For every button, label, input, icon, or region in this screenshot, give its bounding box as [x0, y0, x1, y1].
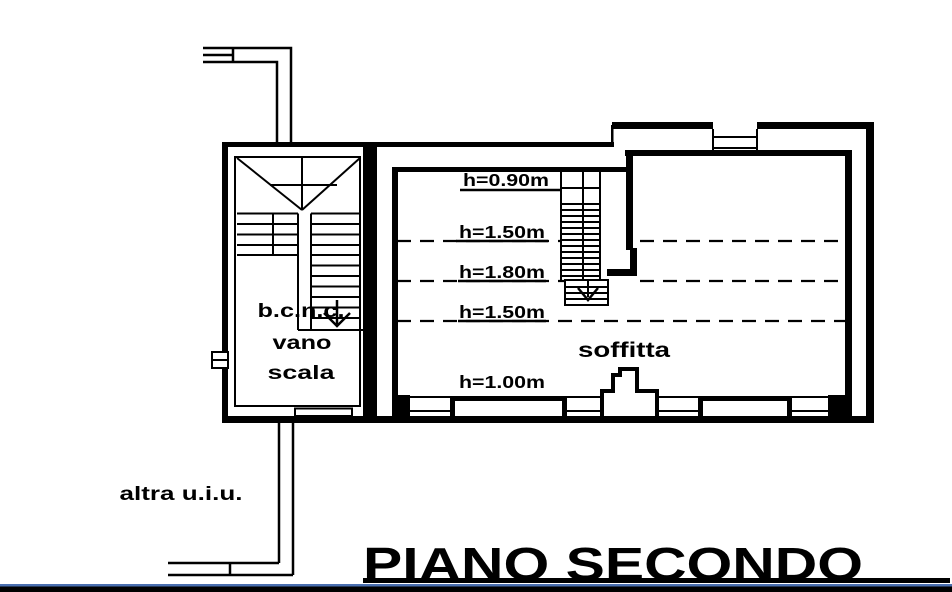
attic-label: soffitta: [578, 339, 670, 362]
height-annotation-150b: h=1.50m: [459, 302, 545, 322]
wall-left: [222, 142, 228, 423]
floor-plan-page: h=0.90m h=1.50m h=1.80m h=1.50m h=1.00m …: [0, 0, 952, 592]
window-block: [701, 399, 790, 419]
floor-plan-drawing: h=0.90m h=1.50m h=1.80m h=1.50m h=1.00m …: [0, 0, 952, 592]
other-unit-label: altra u.i.u.: [120, 484, 243, 505]
height-annotation-100: h=1.00m: [459, 372, 545, 392]
height-annotation-150a: h=1.50m: [459, 222, 545, 242]
flue-inner: [203, 62, 277, 143]
stair-enclosing-wall-v1: [626, 153, 633, 250]
wall-right: [866, 122, 874, 423]
attic-stair: [561, 172, 608, 305]
wall-top-right-b: [757, 122, 869, 129]
window-left-wall: [212, 352, 228, 368]
room-corner-post-right: [828, 395, 852, 423]
chimney: [602, 369, 657, 418]
stairwell-label-line1: b.c.n.c.: [258, 301, 345, 322]
room-corner-post-left: [392, 395, 410, 423]
room-wall-top-right: [625, 150, 852, 156]
stairwell-label-line3: scala: [268, 363, 336, 384]
window-top-right: [713, 129, 757, 150]
stairwell-bottom-window: [295, 409, 352, 417]
stairwell-shared-wall: [363, 142, 377, 423]
stair-enclosing-wall-h: [607, 269, 637, 276]
height-annotation-180: h=1.80m: [459, 262, 545, 282]
title-underline: [363, 578, 950, 583]
wall-top-right-a: [612, 122, 713, 129]
stairwell-label-line2: vano: [273, 333, 332, 354]
height-annotation-090: h=0.90m: [463, 170, 549, 190]
room-wall-left: [392, 167, 398, 400]
room-wall-right: [845, 150, 852, 400]
window-block: [453, 399, 565, 419]
wall-top-left: [222, 142, 614, 147]
border-bottom-bar: [0, 587, 952, 592]
border-accent-line: [0, 584, 952, 587]
flue-duct: [203, 48, 291, 143]
